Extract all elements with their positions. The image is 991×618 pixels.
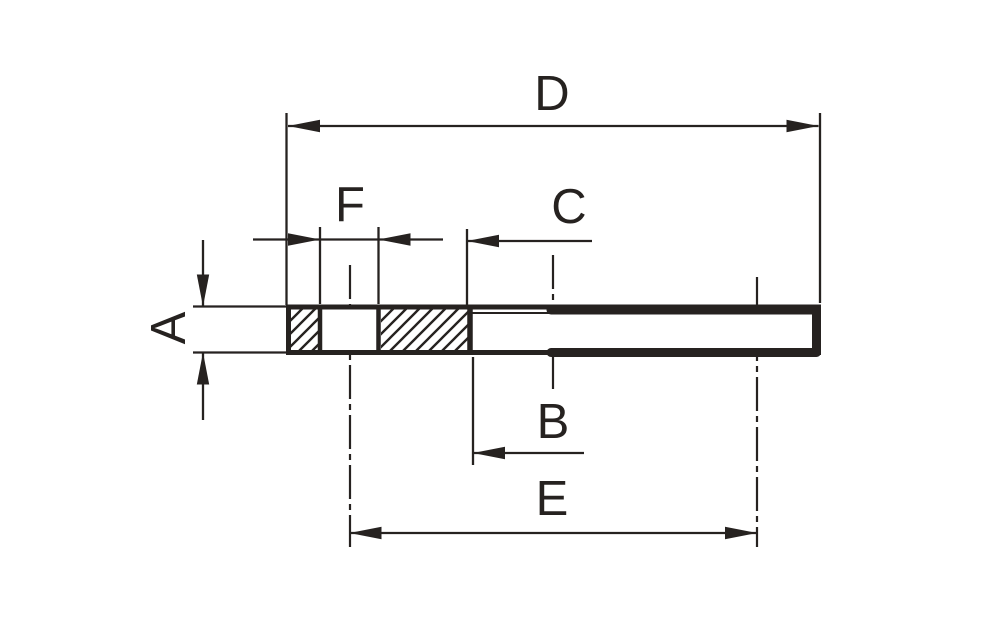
dimension-e: E bbox=[350, 472, 758, 539]
a-arrowhead-down bbox=[197, 275, 209, 307]
dim-label-a: A bbox=[142, 311, 196, 344]
drawing-canvas: D F C A bbox=[0, 0, 991, 618]
flange-dimension-drawing: D F C A bbox=[0, 0, 991, 618]
d-arrowhead-right bbox=[787, 120, 819, 132]
dimension-a: A bbox=[142, 240, 286, 420]
dimension-f: F bbox=[253, 178, 443, 304]
dimension-c: C bbox=[467, 180, 592, 305]
d-arrowhead-left bbox=[288, 120, 320, 132]
dim-label-d: D bbox=[534, 67, 569, 121]
hatch-region-inner bbox=[381, 310, 468, 351]
b-arrowhead bbox=[473, 447, 505, 459]
f-arrowhead-left bbox=[288, 233, 320, 245]
dim-label-b: B bbox=[537, 395, 570, 449]
dim-label-e: E bbox=[536, 472, 569, 526]
e-arrowhead-left bbox=[350, 527, 382, 539]
c-arrowhead bbox=[467, 235, 499, 247]
e-arrowhead-right bbox=[725, 527, 757, 539]
flange-body bbox=[289, 305, 819, 356]
f-arrowhead-right bbox=[379, 233, 411, 245]
a-arrowhead-up bbox=[197, 353, 209, 385]
dim-label-c: C bbox=[551, 180, 586, 234]
dim-label-f: F bbox=[335, 178, 365, 232]
dimension-b: B bbox=[473, 357, 584, 465]
hatch-region-outer-rim bbox=[291, 310, 318, 351]
